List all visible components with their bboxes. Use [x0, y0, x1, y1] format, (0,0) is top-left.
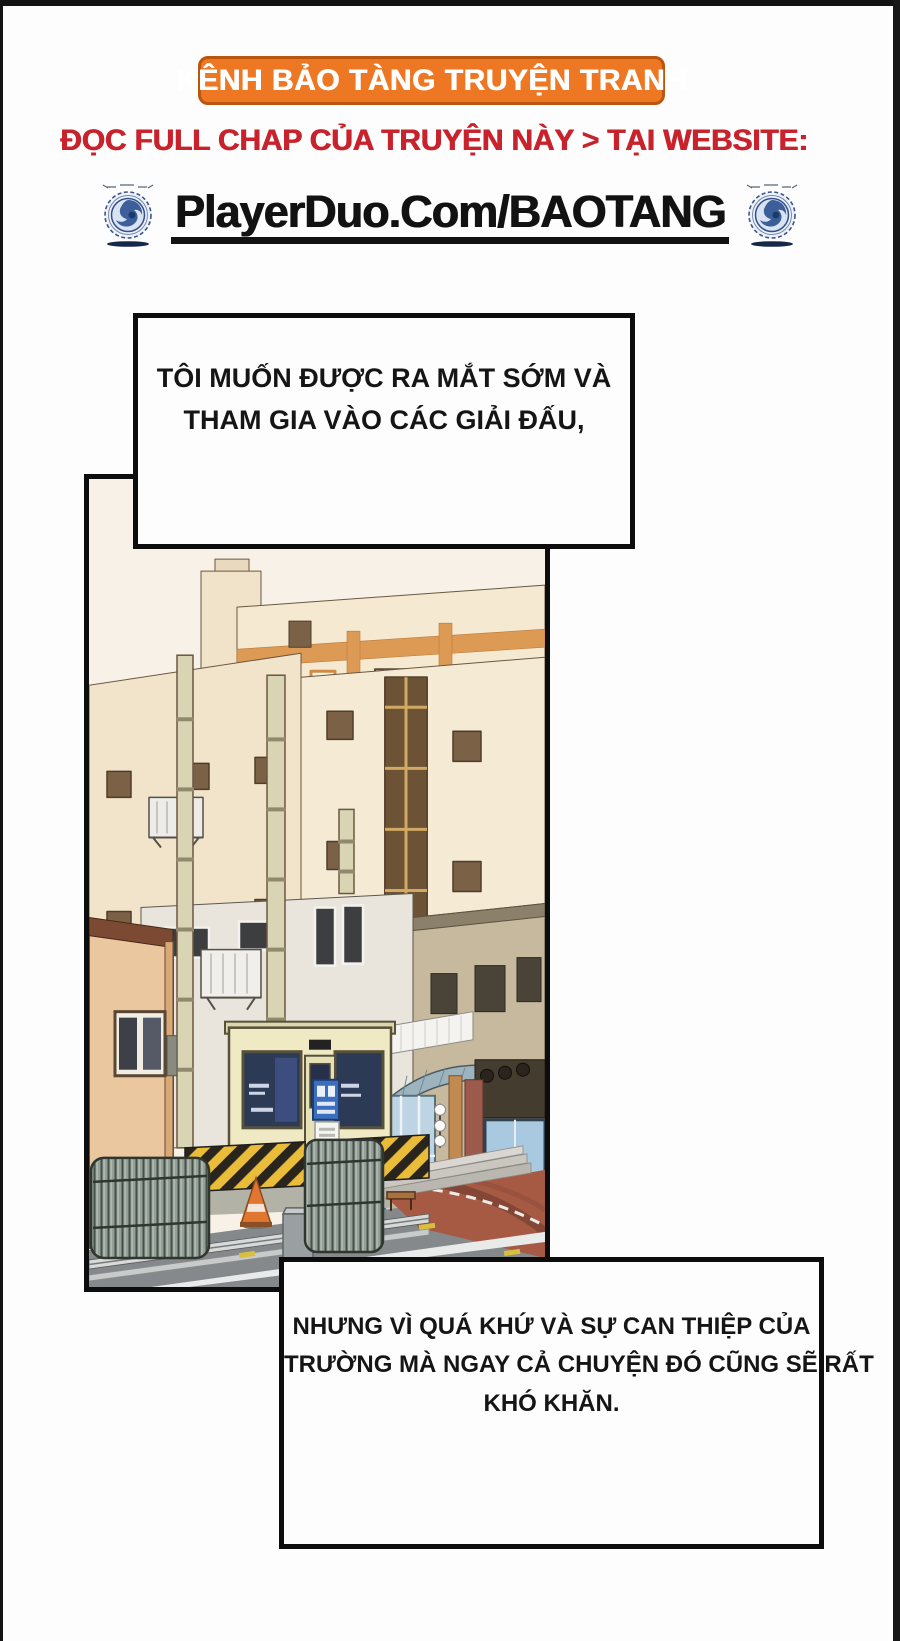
speech-box-2-line2: TRƯỜNG MÀ NGAY CẢ CHUYỆN ĐÓ CŨNG SẼ RẤT	[284, 1346, 819, 1384]
speech-box-1-line1: TÔI MUỐN ĐƯỢC RA MẮT SỚM VÀ	[138, 358, 630, 400]
speech-box-1-line2: THAM GIA VÀO CÁC GIẢI ĐẤU,	[138, 400, 630, 442]
comic-page: KÊNH BẢO TÀNG TRUYỆN TRANH ĐỌC FULL CHAP…	[0, 0, 900, 1641]
folding-gate-left	[91, 1158, 209, 1258]
speech-box-2-line1: NHƯNG VÌ QUÁ KHỨ VÀ SỰ CAN THIỆP CỦA	[284, 1308, 819, 1346]
website-url: PlayerDuo.Com/BAOTANG	[171, 188, 730, 243]
page-edge-left	[0, 0, 3, 1641]
speech-box-2: NHƯNG VÌ QUÁ KHỨ VÀ SỰ CAN THIỆP CỦA TRƯ…	[279, 1257, 824, 1549]
speech-box-1: TÔI MUỐN ĐƯỢC RA MẮT SỚM VÀ THAM GIA VÀO…	[133, 313, 635, 549]
page-edge-right	[893, 0, 900, 1641]
globe-emblem-icon	[743, 181, 801, 252]
folding-gate-right	[305, 1140, 383, 1252]
street-scene-illustration	[89, 479, 545, 1287]
globe-emblem-icon	[99, 181, 157, 252]
speech-box-2-line3: KHÓ KHĂN.	[284, 1385, 819, 1423]
comic-panel	[84, 474, 550, 1292]
promo-subtitle: ĐỌC FULL CHAP CỦA TRUYỆN NÀY > TẠI WEBSI…	[60, 124, 790, 158]
channel-banner: KÊNH BẢO TÀNG TRUYỆN TRANH	[198, 56, 665, 105]
page-edge-top	[0, 0, 900, 6]
channel-banner-label: KÊNH BẢO TÀNG TRUYỆN TRANH	[176, 64, 687, 98]
website-link-row: PlayerDuo.Com/BAOTANG	[100, 176, 800, 256]
